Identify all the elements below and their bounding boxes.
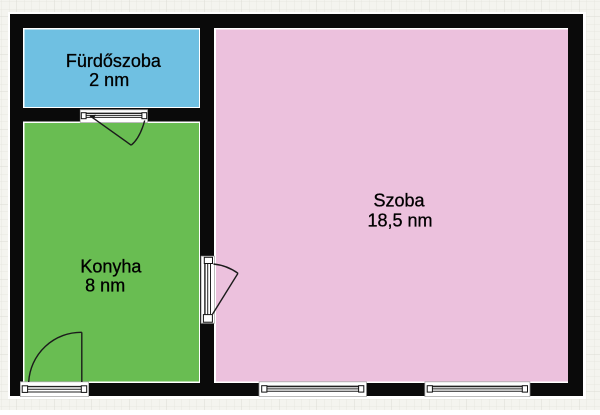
svg-text:Konyha: Konyha bbox=[80, 257, 142, 277]
svg-text:2 nm: 2 nm bbox=[89, 70, 129, 90]
svg-text:Szoba: Szoba bbox=[373, 191, 425, 211]
svg-text:Fürdőszoba: Fürdőszoba bbox=[66, 51, 162, 71]
svg-text:8 nm: 8 nm bbox=[85, 276, 125, 296]
svg-text:18,5 nm: 18,5 nm bbox=[367, 211, 432, 231]
